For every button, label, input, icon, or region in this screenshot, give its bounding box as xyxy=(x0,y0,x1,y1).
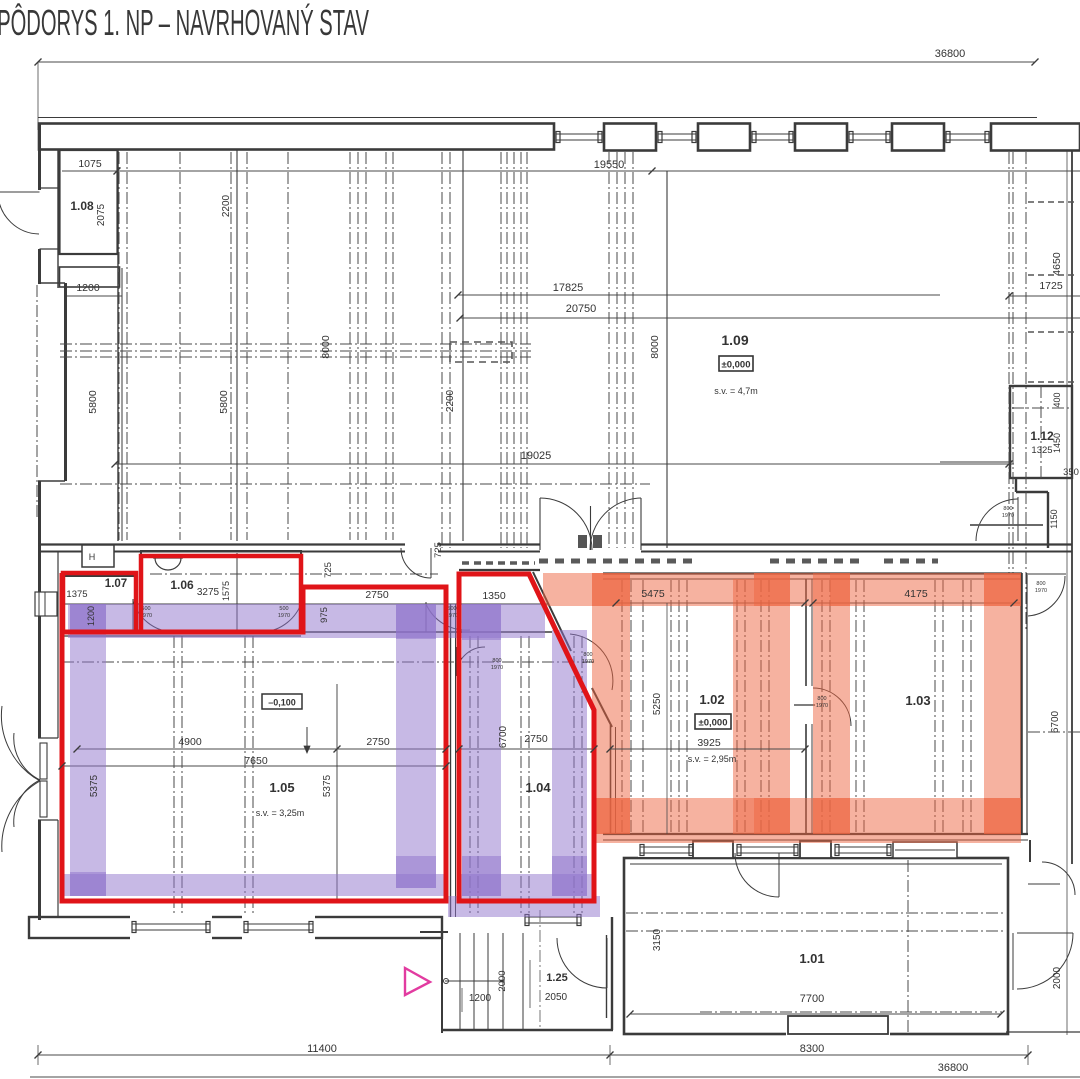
svg-text:2000: 2000 xyxy=(1052,966,1063,989)
svg-text:5800: 5800 xyxy=(218,390,230,414)
svg-text:5800: 5800 xyxy=(87,390,99,414)
svg-text:1350: 1350 xyxy=(482,590,506,602)
svg-text:1.08: 1.08 xyxy=(70,199,94,213)
svg-text:7650: 7650 xyxy=(244,755,268,767)
svg-text:1075: 1075 xyxy=(78,158,102,170)
svg-text:1970: 1970 xyxy=(1035,588,1047,594)
svg-text:1970: 1970 xyxy=(582,659,594,665)
svg-text:800: 800 xyxy=(1036,581,1045,587)
svg-text:1325: 1325 xyxy=(1031,445,1052,456)
svg-text:1970: 1970 xyxy=(816,703,828,709)
svg-text:1.09: 1.09 xyxy=(721,332,748,348)
svg-text:2200: 2200 xyxy=(445,389,456,412)
svg-text:1200: 1200 xyxy=(469,993,492,1004)
svg-text:5250: 5250 xyxy=(652,692,663,715)
svg-text:1575: 1575 xyxy=(221,581,231,601)
svg-text:1.05: 1.05 xyxy=(269,780,294,795)
svg-text:1.06: 1.06 xyxy=(170,578,194,592)
svg-text:5375: 5375 xyxy=(89,774,100,797)
svg-text:1150: 1150 xyxy=(1049,509,1059,528)
svg-text:2200: 2200 xyxy=(221,194,232,217)
svg-text:3275: 3275 xyxy=(197,587,220,598)
svg-text:400: 400 xyxy=(1052,392,1062,407)
svg-text:4650: 4650 xyxy=(1051,252,1063,276)
svg-text:800: 800 xyxy=(817,696,826,702)
svg-text:1.25: 1.25 xyxy=(546,972,567,984)
svg-text:8000: 8000 xyxy=(320,335,332,359)
svg-text:8000: 8000 xyxy=(649,335,661,359)
svg-text:1.04: 1.04 xyxy=(525,780,551,795)
svg-text:800: 800 xyxy=(1003,506,1012,512)
svg-text:2750: 2750 xyxy=(365,589,389,601)
svg-text:36800: 36800 xyxy=(938,1062,969,1074)
svg-text:3925: 3925 xyxy=(697,737,721,749)
svg-text:500: 500 xyxy=(279,606,288,612)
svg-text:800: 800 xyxy=(583,652,592,658)
svg-text:725: 725 xyxy=(433,542,444,558)
svg-text:7700: 7700 xyxy=(800,993,824,1005)
svg-text:4900: 4900 xyxy=(178,736,202,748)
svg-text:1.02: 1.02 xyxy=(699,692,724,707)
svg-text:11400: 11400 xyxy=(307,1043,337,1055)
svg-text:6700: 6700 xyxy=(1050,710,1061,733)
svg-text:H: H xyxy=(89,552,96,562)
svg-text:2000: 2000 xyxy=(497,970,508,991)
svg-text:800: 800 xyxy=(492,658,501,664)
svg-text:1970: 1970 xyxy=(491,665,503,671)
svg-text:s.v. = 4,7m: s.v. = 4,7m xyxy=(714,386,758,396)
svg-text:±0,000: ±0,000 xyxy=(699,718,728,729)
svg-text:1.07: 1.07 xyxy=(105,578,127,590)
svg-text:1970: 1970 xyxy=(278,613,290,619)
svg-text:5375: 5375 xyxy=(322,774,333,797)
svg-text:4175: 4175 xyxy=(904,588,928,600)
svg-text:1970: 1970 xyxy=(1002,513,1014,519)
svg-text:5475: 5475 xyxy=(641,588,665,600)
svg-text:2050: 2050 xyxy=(545,992,568,1003)
svg-text:2750: 2750 xyxy=(366,736,390,748)
svg-text:350: 350 xyxy=(1063,467,1079,478)
svg-text:PÔDORYS 1. NP – NAVRHOVANÝ STA: PÔDORYS 1. NP – NAVRHOVANÝ STAV xyxy=(0,2,369,44)
svg-text:1200: 1200 xyxy=(76,282,100,294)
svg-text:500: 500 xyxy=(447,606,456,612)
svg-text:8300: 8300 xyxy=(800,1043,824,1055)
svg-text:17825: 17825 xyxy=(553,282,584,294)
svg-text:s.v. = 3,25m: s.v. = 3,25m xyxy=(256,808,305,818)
svg-text:20750: 20750 xyxy=(566,303,597,315)
svg-text:s.v. = 2,95m: s.v. = 2,95m xyxy=(688,754,737,764)
svg-text:–0,100: –0,100 xyxy=(268,698,296,708)
svg-text:6700: 6700 xyxy=(498,725,509,748)
svg-text:1.03: 1.03 xyxy=(905,693,930,708)
svg-text:19025: 19025 xyxy=(521,450,552,462)
svg-text:±0,000: ±0,000 xyxy=(722,360,751,371)
svg-text:1450: 1450 xyxy=(1052,433,1062,453)
svg-text:1375: 1375 xyxy=(66,589,87,600)
svg-text:36800: 36800 xyxy=(935,48,966,60)
svg-text:3150: 3150 xyxy=(652,928,663,951)
svg-text:2075: 2075 xyxy=(96,203,107,226)
svg-text:1.12: 1.12 xyxy=(1030,429,1054,443)
svg-text:1.01: 1.01 xyxy=(799,951,824,966)
svg-text:1725: 1725 xyxy=(1039,280,1063,292)
svg-text:975: 975 xyxy=(319,607,330,623)
svg-text:1200: 1200 xyxy=(86,606,96,626)
svg-text:725: 725 xyxy=(323,562,334,578)
svg-text:2750: 2750 xyxy=(524,733,548,745)
